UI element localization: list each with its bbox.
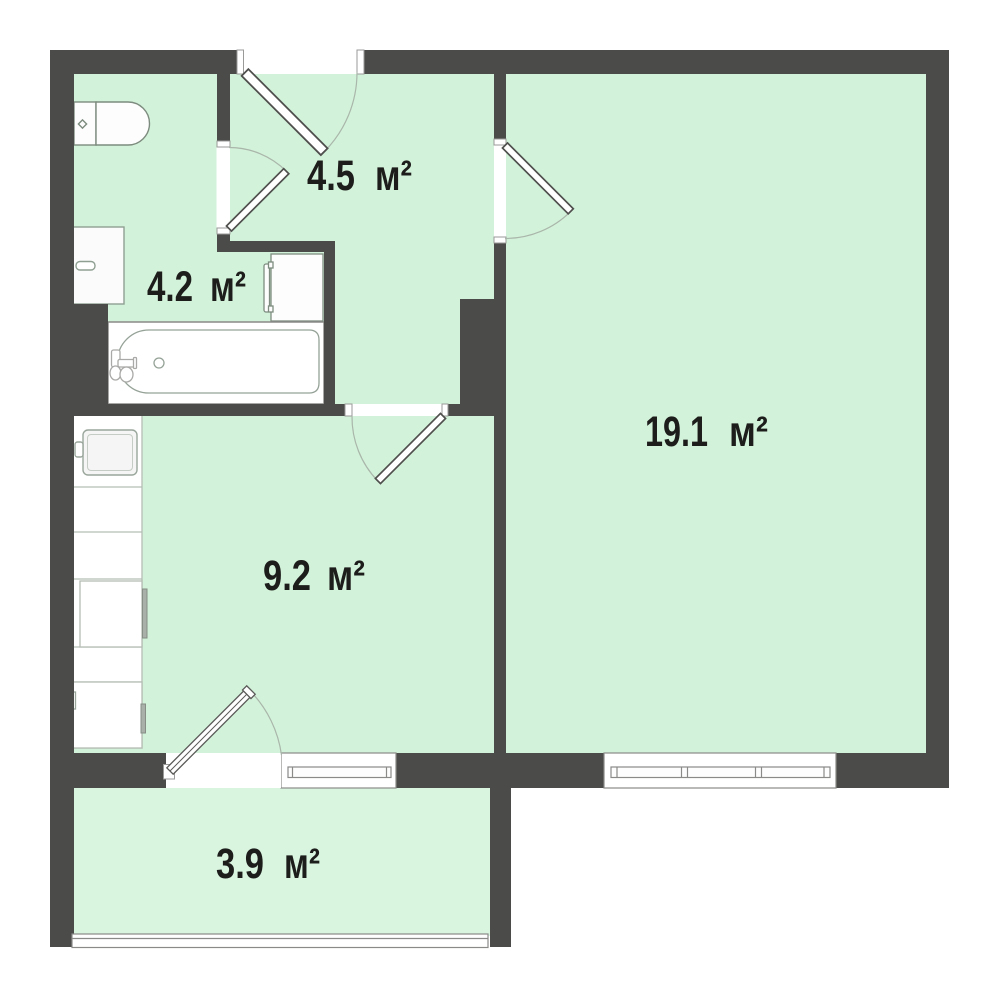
svg-text:19.1: 19.1 — [645, 408, 708, 456]
svg-text:9.2: 9.2 — [263, 552, 311, 600]
svg-text:4.2: 4.2 — [147, 263, 193, 311]
svg-text:3.9: 3.9 — [216, 840, 264, 888]
svg-text:м²: м² — [210, 263, 246, 311]
svg-text:4.5: 4.5 — [307, 152, 355, 200]
svg-text:м²: м² — [327, 552, 365, 600]
svg-text:м²: м² — [284, 840, 320, 888]
svg-text:м²: м² — [729, 408, 768, 456]
svg-text:м²: м² — [375, 152, 412, 200]
